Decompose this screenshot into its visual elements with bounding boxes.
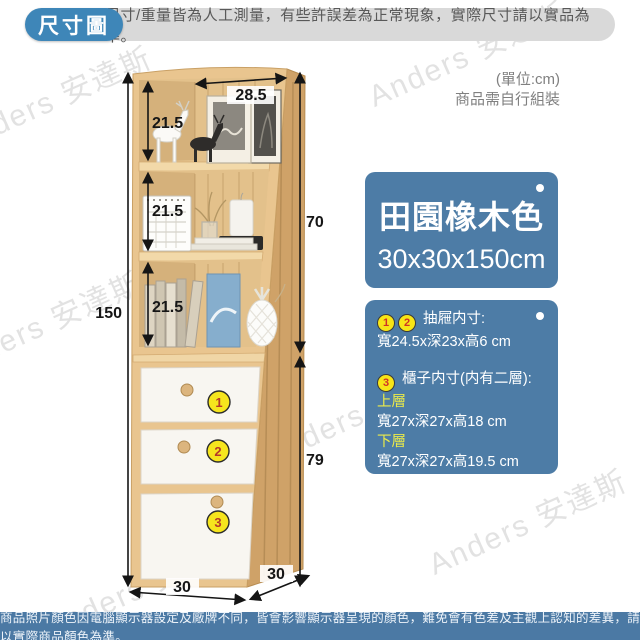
- badge-1: 1: [208, 391, 230, 413]
- spec-badge-2: 2: [398, 314, 416, 332]
- header-note-bar: 尺寸/重量皆為人工測量，有些許誤差為正常現象，實際尺寸請以實品為準。: [105, 8, 615, 41]
- label-shelf-1: 21.5: [152, 115, 183, 132]
- label-total-height: 150: [95, 305, 122, 322]
- unit-note-line1: (單位:cm): [455, 70, 560, 90]
- drawer-knob-2: [178, 441, 190, 453]
- svg-text:3: 3: [214, 515, 221, 530]
- svg-text:2: 2: [214, 444, 221, 459]
- label-base-width: 30: [173, 579, 191, 596]
- door-panel: [141, 493, 253, 579]
- header-note-text: 尺寸/重量皆為人工測量，有些許誤差為正常現象，實際尺寸請以實品為準。: [105, 4, 615, 46]
- spec-badge-1: 1: [377, 314, 395, 332]
- upper-layer-size: 寬27x深27x高18 cm: [377, 412, 546, 432]
- color-size-panel: 田園橡木色 30x30x150cm: [365, 172, 558, 288]
- cabinet-spec-title: 櫃子内寸(内有二層):: [402, 371, 532, 387]
- corner-dot: [536, 312, 544, 320]
- drawer-knob-1: [181, 384, 193, 396]
- color-name: 田園橡木色: [365, 192, 558, 238]
- spec-panel: 12 抽屜内寸: 寬24.5x深23x高6 cm 3 櫃子内寸(内有二層): 上…: [365, 300, 558, 474]
- badge-3: 3: [207, 511, 229, 533]
- size-chart-badge: 尺寸圖: [25, 8, 123, 41]
- label-upper-height: 70: [306, 214, 324, 231]
- spec-badge-3: 3: [377, 374, 395, 392]
- label-lower-height: 79: [306, 452, 324, 469]
- corner-dot: [536, 184, 544, 192]
- size-chart-page: Anders 安達斯 Anders 安達斯 Anders 安達斯 Anders …: [0, 0, 640, 640]
- footer-disclaimer-bar: 商品照片顏色因電腦顯示器設定及廠牌不同，皆會影響顯示器呈現的顏色，難免會有色差及…: [0, 612, 640, 640]
- cabinet-illustration: 1 2 3 150 21.5 21.5 21.5 28.5 70: [55, 50, 365, 610]
- drawer-panel-2: [141, 429, 257, 484]
- size-chart-badge-label: 尺寸圖: [38, 10, 110, 40]
- lower-layer-size: 寬27x深27x高19.5 cm: [377, 452, 546, 472]
- drawer-spec-title: 抽屜内寸:: [423, 311, 485, 327]
- unit-note: (單位:cm) 商品需自行組裝: [455, 70, 560, 110]
- label-top-width: 28.5: [235, 87, 266, 104]
- svg-text:1: 1: [215, 395, 222, 410]
- picture-frame-light: [207, 96, 251, 163]
- badge-2: 2: [207, 440, 229, 462]
- footer-disclaimer-text: 商品照片顏色因電腦顯示器設定及廠牌不同，皆會影響顯示器呈現的顏色，難免會有色差及…: [0, 607, 640, 640]
- drawer-spec-title-row: 12 抽屜内寸:: [377, 309, 546, 332]
- upper-layer-label: 上層: [377, 392, 546, 412]
- lower-cabinet-top: [133, 353, 265, 362]
- door-knob: [211, 496, 223, 508]
- label-shelf-2: 21.5: [152, 203, 183, 220]
- blue-art-book: [207, 274, 240, 347]
- drawer-panel-1: [141, 367, 260, 422]
- lower-layer-label: 下層: [377, 432, 546, 452]
- watermark: Anders 安達斯: [420, 457, 633, 584]
- cabinet-spec-title-row: 3 櫃子内寸(内有二層):: [377, 369, 546, 392]
- overall-size: 30x30x150cm: [365, 244, 558, 275]
- book-stack-flat: [191, 238, 257, 250]
- label-shelf-3: 21.5: [152, 299, 183, 316]
- drawer-spec-size: 寬24.5x深23x高6 cm: [377, 332, 546, 352]
- label-base-depth: 30: [267, 566, 285, 583]
- unit-note-line2: 商品需自行組裝: [455, 90, 560, 110]
